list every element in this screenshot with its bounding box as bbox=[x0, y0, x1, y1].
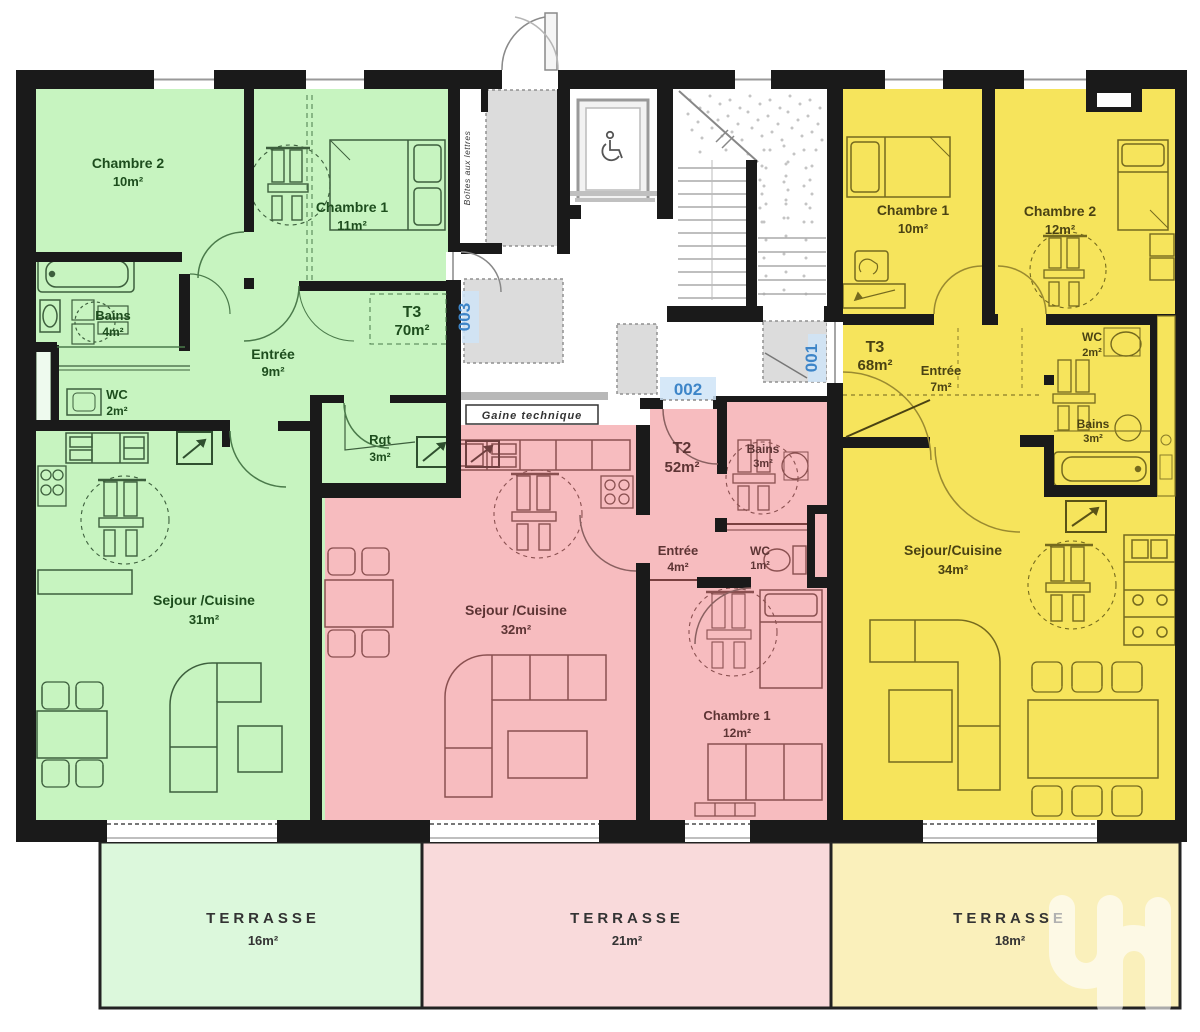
svg-text:Boîtes aux lettres: Boîtes aux lettres bbox=[462, 130, 472, 205]
svg-text:70m²: 70m² bbox=[394, 322, 429, 339]
svg-text:Entrée: Entrée bbox=[251, 346, 295, 362]
svg-text:21m²: 21m² bbox=[612, 933, 643, 948]
svg-text:1m²: 1m² bbox=[750, 560, 770, 572]
svg-text:9m²: 9m² bbox=[261, 364, 285, 379]
svg-text:003: 003 bbox=[455, 303, 474, 331]
svg-text:T3: T3 bbox=[403, 304, 422, 321]
svg-text:WC: WC bbox=[1082, 330, 1102, 344]
svg-text:Bains: Bains bbox=[95, 308, 130, 323]
svg-text:002: 002 bbox=[674, 380, 702, 399]
svg-text:Entrée: Entrée bbox=[658, 543, 698, 558]
svg-text:Rgt: Rgt bbox=[369, 432, 391, 447]
svg-text:16m²: 16m² bbox=[248, 933, 279, 948]
svg-text:TERRASSE: TERRASSE bbox=[206, 910, 320, 927]
svg-text:T3: T3 bbox=[866, 339, 885, 356]
svg-text:4m²: 4m² bbox=[667, 560, 688, 574]
svg-text:Chambre 1: Chambre 1 bbox=[316, 199, 389, 215]
svg-text:31m²: 31m² bbox=[189, 612, 220, 627]
svg-text:18m²: 18m² bbox=[995, 933, 1026, 948]
svg-text:12m²: 12m² bbox=[723, 726, 751, 740]
svg-text:Bains: Bains bbox=[747, 442, 780, 456]
svg-text:34m²: 34m² bbox=[938, 562, 969, 577]
svg-text:Sejour /Cuisine: Sejour /Cuisine bbox=[153, 592, 255, 608]
svg-text:Sejour /Cuisine: Sejour /Cuisine bbox=[465, 602, 567, 618]
svg-text:11m²: 11m² bbox=[337, 218, 367, 233]
svg-text:4m²: 4m² bbox=[102, 325, 123, 339]
svg-text:Gaine technique: Gaine technique bbox=[482, 410, 583, 422]
svg-text:Chambre 1: Chambre 1 bbox=[877, 202, 950, 218]
svg-text:68m²: 68m² bbox=[857, 357, 892, 374]
svg-text:3m²: 3m² bbox=[1083, 433, 1103, 445]
svg-text:Chambre 1: Chambre 1 bbox=[703, 708, 770, 723]
svg-text:32m²: 32m² bbox=[501, 622, 532, 637]
svg-text:2m²: 2m² bbox=[1082, 347, 1102, 359]
svg-text:WC: WC bbox=[106, 387, 128, 402]
svg-text:Chambre 2: Chambre 2 bbox=[92, 155, 165, 171]
svg-text:12m²: 12m² bbox=[1045, 222, 1076, 237]
svg-text:WC: WC bbox=[750, 544, 770, 558]
svg-text:3m²: 3m² bbox=[369, 450, 390, 464]
svg-text:Sejour/Cuisine: Sejour/Cuisine bbox=[904, 542, 1002, 558]
svg-text:2m²: 2m² bbox=[106, 404, 127, 418]
svg-text:3m²: 3m² bbox=[753, 458, 773, 470]
svg-text:Entrée: Entrée bbox=[921, 363, 961, 378]
svg-text:Bains: Bains bbox=[1077, 417, 1110, 431]
svg-text:TERRASSE: TERRASSE bbox=[570, 910, 684, 927]
svg-text:52m²: 52m² bbox=[664, 459, 699, 476]
svg-text:10m²: 10m² bbox=[113, 174, 144, 189]
svg-text:10m²: 10m² bbox=[898, 221, 929, 236]
svg-text:Chambre 2: Chambre 2 bbox=[1024, 203, 1097, 219]
svg-text:001: 001 bbox=[802, 344, 821, 372]
svg-text:T2: T2 bbox=[673, 440, 692, 457]
svg-text:7m²: 7m² bbox=[930, 380, 951, 394]
